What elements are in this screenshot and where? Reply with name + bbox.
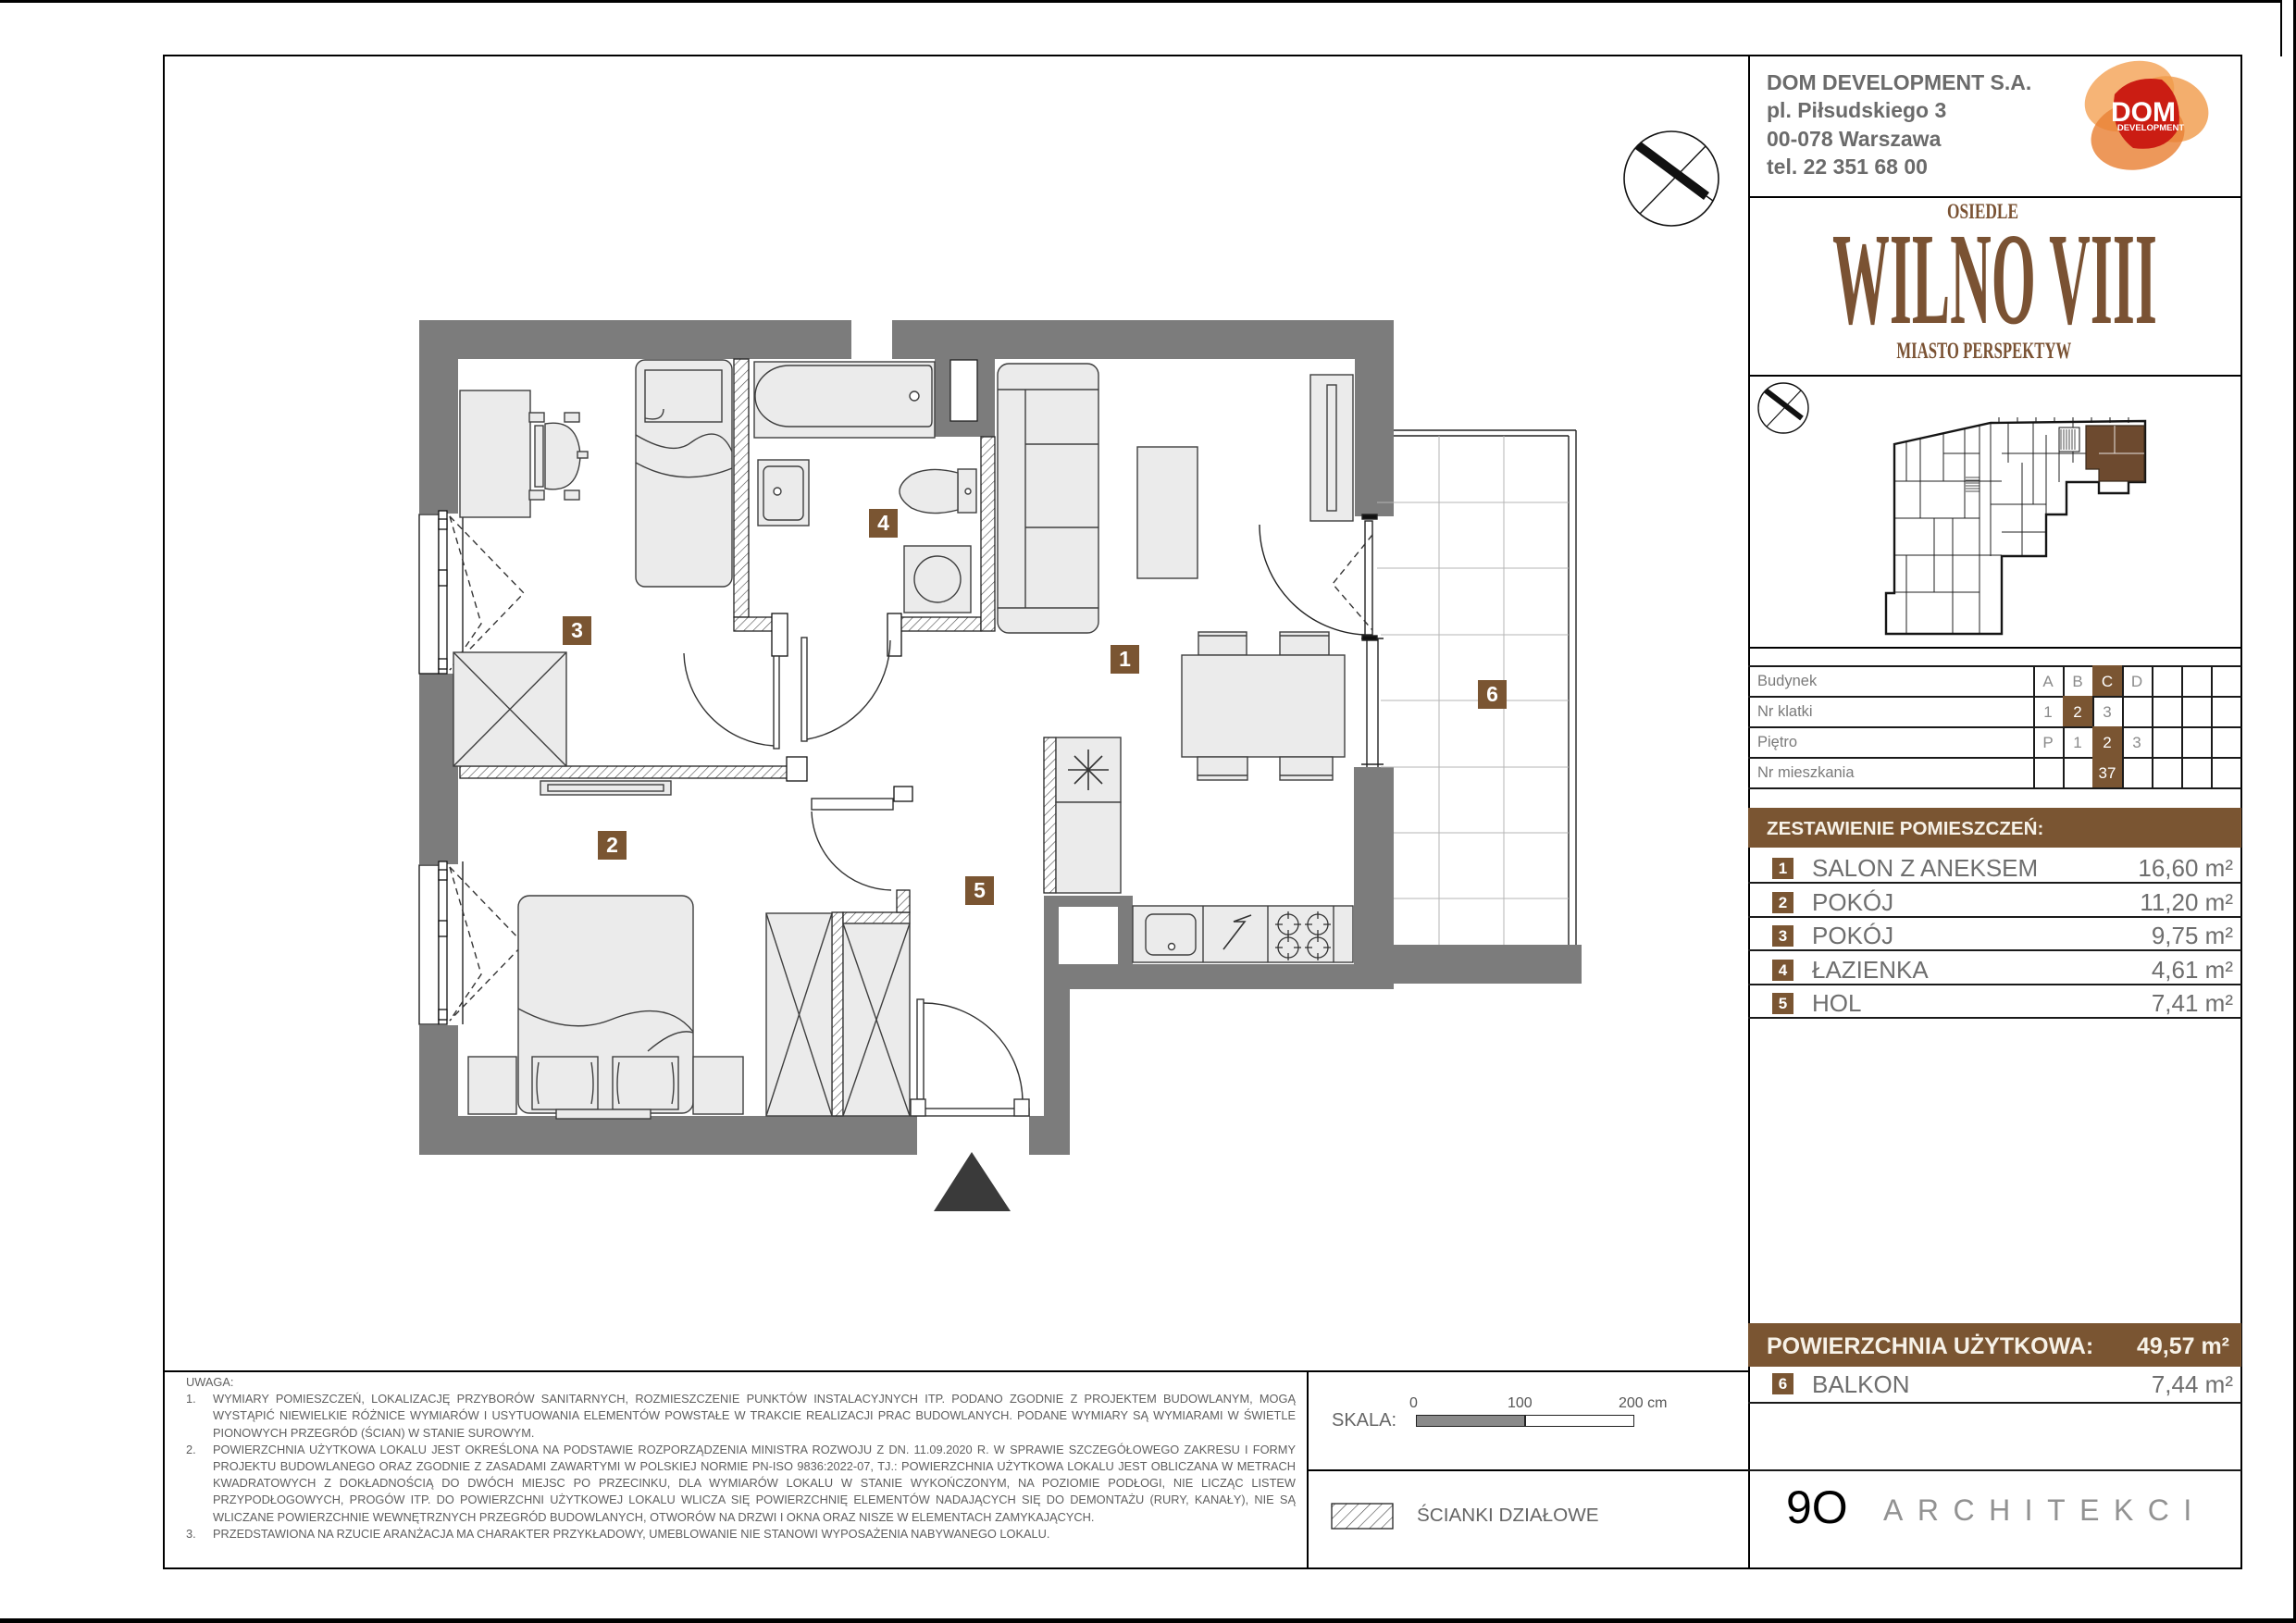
svg-text:DEVELOPMENT: DEVELOPMENT bbox=[2117, 123, 2185, 133]
svg-text:2: 2 bbox=[606, 833, 618, 857]
svg-text:3: 3 bbox=[571, 618, 583, 642]
svg-text:WILNO VIII: WILNO VIII bbox=[1832, 205, 2157, 352]
svg-text:6: 6 bbox=[1486, 682, 1498, 706]
svg-text:1: 1 bbox=[1119, 647, 1131, 671]
svg-text:4: 4 bbox=[877, 511, 889, 535]
svg-text:5: 5 bbox=[974, 878, 986, 902]
svg-text:MIASTO PERSPEKTYW: MIASTO PERSPEKTYW bbox=[1896, 338, 2071, 364]
